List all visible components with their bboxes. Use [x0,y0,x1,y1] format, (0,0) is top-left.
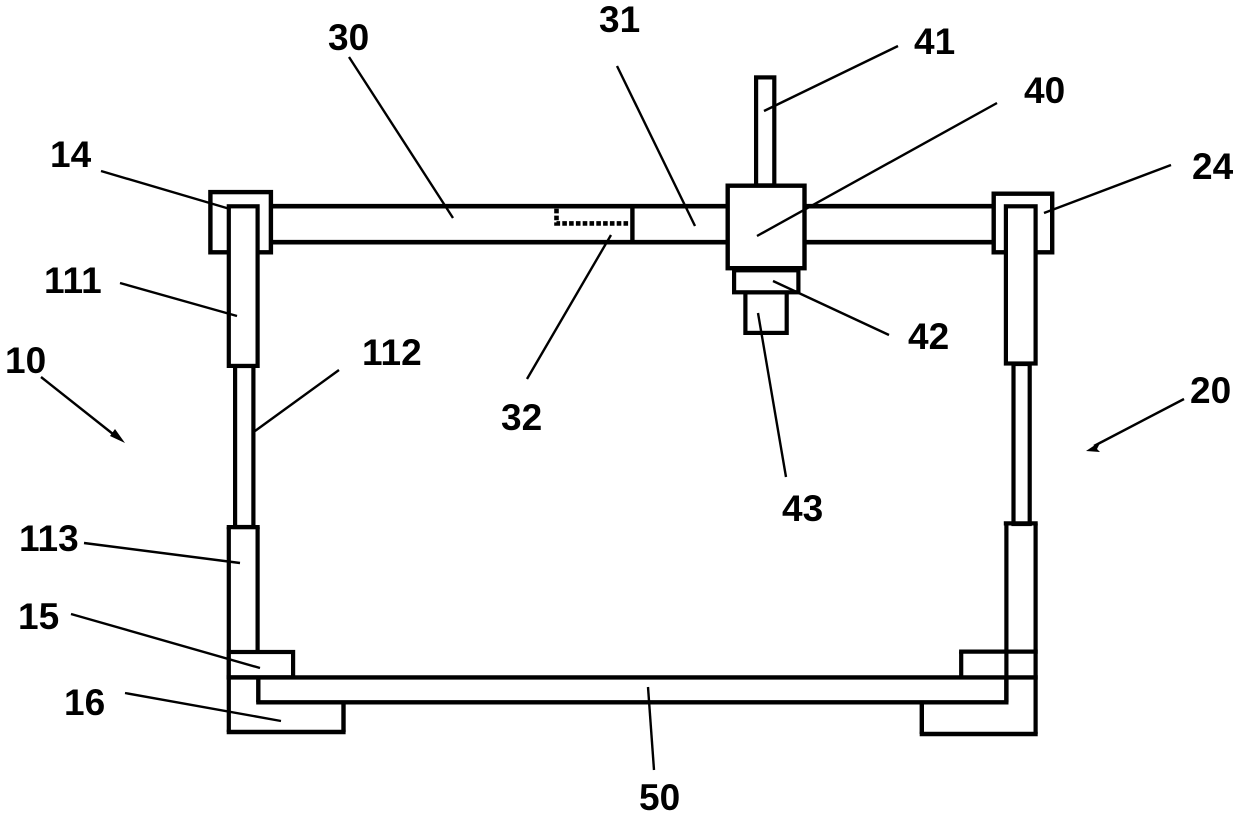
svg-text:50: 50 [639,777,680,817]
svg-text:113: 113 [19,518,79,559]
svg-text:112: 112 [362,332,422,373]
svg-text:40: 40 [1024,70,1065,111]
svg-text:43: 43 [782,488,823,529]
svg-text:111: 111 [44,260,102,301]
svg-text:32: 32 [501,397,542,438]
svg-text:20: 20 [1190,370,1231,411]
svg-text:14: 14 [50,134,92,175]
svg-text:41: 41 [914,21,955,62]
svg-text:16: 16 [64,682,105,723]
svg-text:30: 30 [328,17,369,58]
svg-text:31: 31 [599,0,640,40]
svg-text:24: 24 [1192,146,1234,187]
svg-text:42: 42 [908,316,949,357]
svg-text:10: 10 [5,340,46,381]
svg-text:15: 15 [18,596,59,637]
